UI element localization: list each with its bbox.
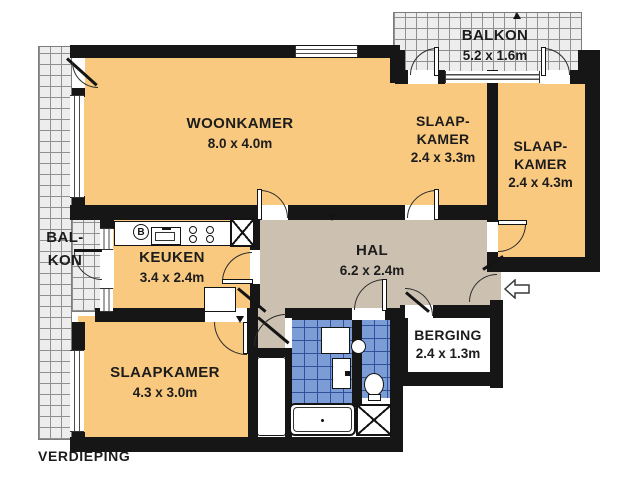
room-name: BALKON bbox=[462, 27, 529, 46]
room-name: WOONKAMER bbox=[187, 115, 294, 134]
kitchen-cabinet bbox=[204, 287, 236, 312]
door-threshold bbox=[100, 250, 114, 288]
window bbox=[445, 71, 540, 83]
dimension-tick bbox=[513, 12, 521, 19]
wall bbox=[72, 45, 85, 58]
closet bbox=[257, 357, 286, 436]
wall bbox=[285, 308, 292, 318]
bathroom-sink bbox=[332, 358, 351, 389]
toilet-bowl bbox=[364, 373, 384, 396]
room-name: KAMER bbox=[417, 130, 470, 148]
hal-label: HAL 6.2 x 2.4m bbox=[312, 242, 432, 280]
wall bbox=[400, 372, 503, 386]
room-name: BERGING bbox=[414, 326, 481, 344]
shower-tray bbox=[321, 327, 350, 354]
room-name: BAL- bbox=[46, 226, 83, 249]
dimension-tick bbox=[328, 214, 336, 221]
balkon-left-label: BAL- KON bbox=[36, 226, 94, 273]
room-dims: 6.2 x 2.4m bbox=[340, 263, 405, 280]
window bbox=[70, 95, 84, 198]
wall bbox=[288, 205, 405, 220]
room-dims: 3.4 x 2.4m bbox=[140, 270, 205, 287]
bathtub bbox=[289, 403, 356, 436]
floor-title: VERDIEPING bbox=[38, 448, 130, 464]
floor-plan: B WOONKAMER 8.0 x 4.0m BALKON 5.2 x 1.6m… bbox=[0, 0, 640, 480]
door-threshold bbox=[487, 222, 498, 252]
room-name: KAMER bbox=[514, 155, 567, 173]
burner-icon bbox=[189, 235, 197, 243]
window bbox=[100, 288, 113, 312]
wall bbox=[395, 70, 408, 84]
room-name: KEUKEN bbox=[139, 249, 205, 268]
balkon-top-label: BALKON 5.2 x 1.6m bbox=[415, 27, 575, 65]
burner-icon bbox=[206, 226, 214, 234]
sink-tap bbox=[162, 227, 171, 230]
wall bbox=[72, 322, 85, 350]
slaapkamer-ne-label: SLAAP- KAMER 2.4 x 3.3m bbox=[397, 112, 489, 167]
shaft-icon bbox=[356, 404, 392, 436]
window bbox=[70, 350, 84, 432]
door-leaf bbox=[498, 220, 527, 225]
keuken-label: KEUKEN 3.4 x 2.4m bbox=[113, 249, 231, 287]
door-leaf bbox=[382, 279, 387, 311]
dimension-tick bbox=[236, 316, 244, 323]
room-name: SLAAP- bbox=[514, 137, 568, 155]
toilet-base bbox=[368, 394, 381, 401]
wall bbox=[100, 215, 114, 229]
sink-tap bbox=[345, 371, 350, 376]
wall bbox=[352, 315, 362, 407]
slaapkamer-e-label: SLAAP- KAMER 2.4 x 4.3m bbox=[493, 137, 588, 192]
room-dims: 4.3 x 3.0m bbox=[133, 385, 198, 402]
toilet-basin-icon bbox=[351, 339, 366, 354]
room-dims: 8.0 x 4.0m bbox=[208, 136, 273, 153]
wall bbox=[487, 252, 498, 258]
wall bbox=[438, 70, 445, 84]
room-dims: 5.2 x 1.6m bbox=[463, 48, 528, 65]
slaapkamer-sw-label: SLAAPKAMER 4.3 x 3.0m bbox=[85, 364, 245, 402]
room-name: SLAAPKAMER bbox=[110, 364, 220, 383]
room-dims: 2.4 x 3.3m bbox=[411, 150, 476, 167]
burner-icon bbox=[206, 235, 214, 243]
wall bbox=[487, 257, 600, 272]
room-name: HAL bbox=[356, 242, 388, 261]
door-leaf bbox=[243, 322, 248, 354]
boiler-label: B bbox=[137, 227, 144, 238]
bathtub-drain bbox=[321, 419, 324, 422]
stove bbox=[187, 225, 217, 245]
room-name: SLAAP- bbox=[416, 112, 470, 130]
door-leaf bbox=[434, 189, 439, 220]
shaft-icon bbox=[230, 218, 255, 247]
boiler-icon: B bbox=[133, 224, 149, 240]
wall bbox=[290, 308, 352, 320]
wall bbox=[72, 196, 85, 210]
sink-basin bbox=[155, 232, 175, 241]
woonkamer-label: WOONKAMER 8.0 x 4.0m bbox=[135, 115, 345, 153]
burner-icon bbox=[189, 226, 197, 234]
room-dims: 2.4 x 4.3m bbox=[508, 175, 573, 192]
kitchen-sink bbox=[151, 227, 181, 245]
door-leaf bbox=[257, 189, 262, 220]
berging-label: BERGING 2.4 x 1.3m bbox=[400, 326, 496, 363]
room-name: KON bbox=[48, 249, 83, 272]
entry-arrow-icon bbox=[504, 279, 530, 299]
window bbox=[100, 228, 113, 250]
window bbox=[295, 46, 358, 57]
room-dims: 2.4 x 1.3m bbox=[416, 346, 481, 363]
